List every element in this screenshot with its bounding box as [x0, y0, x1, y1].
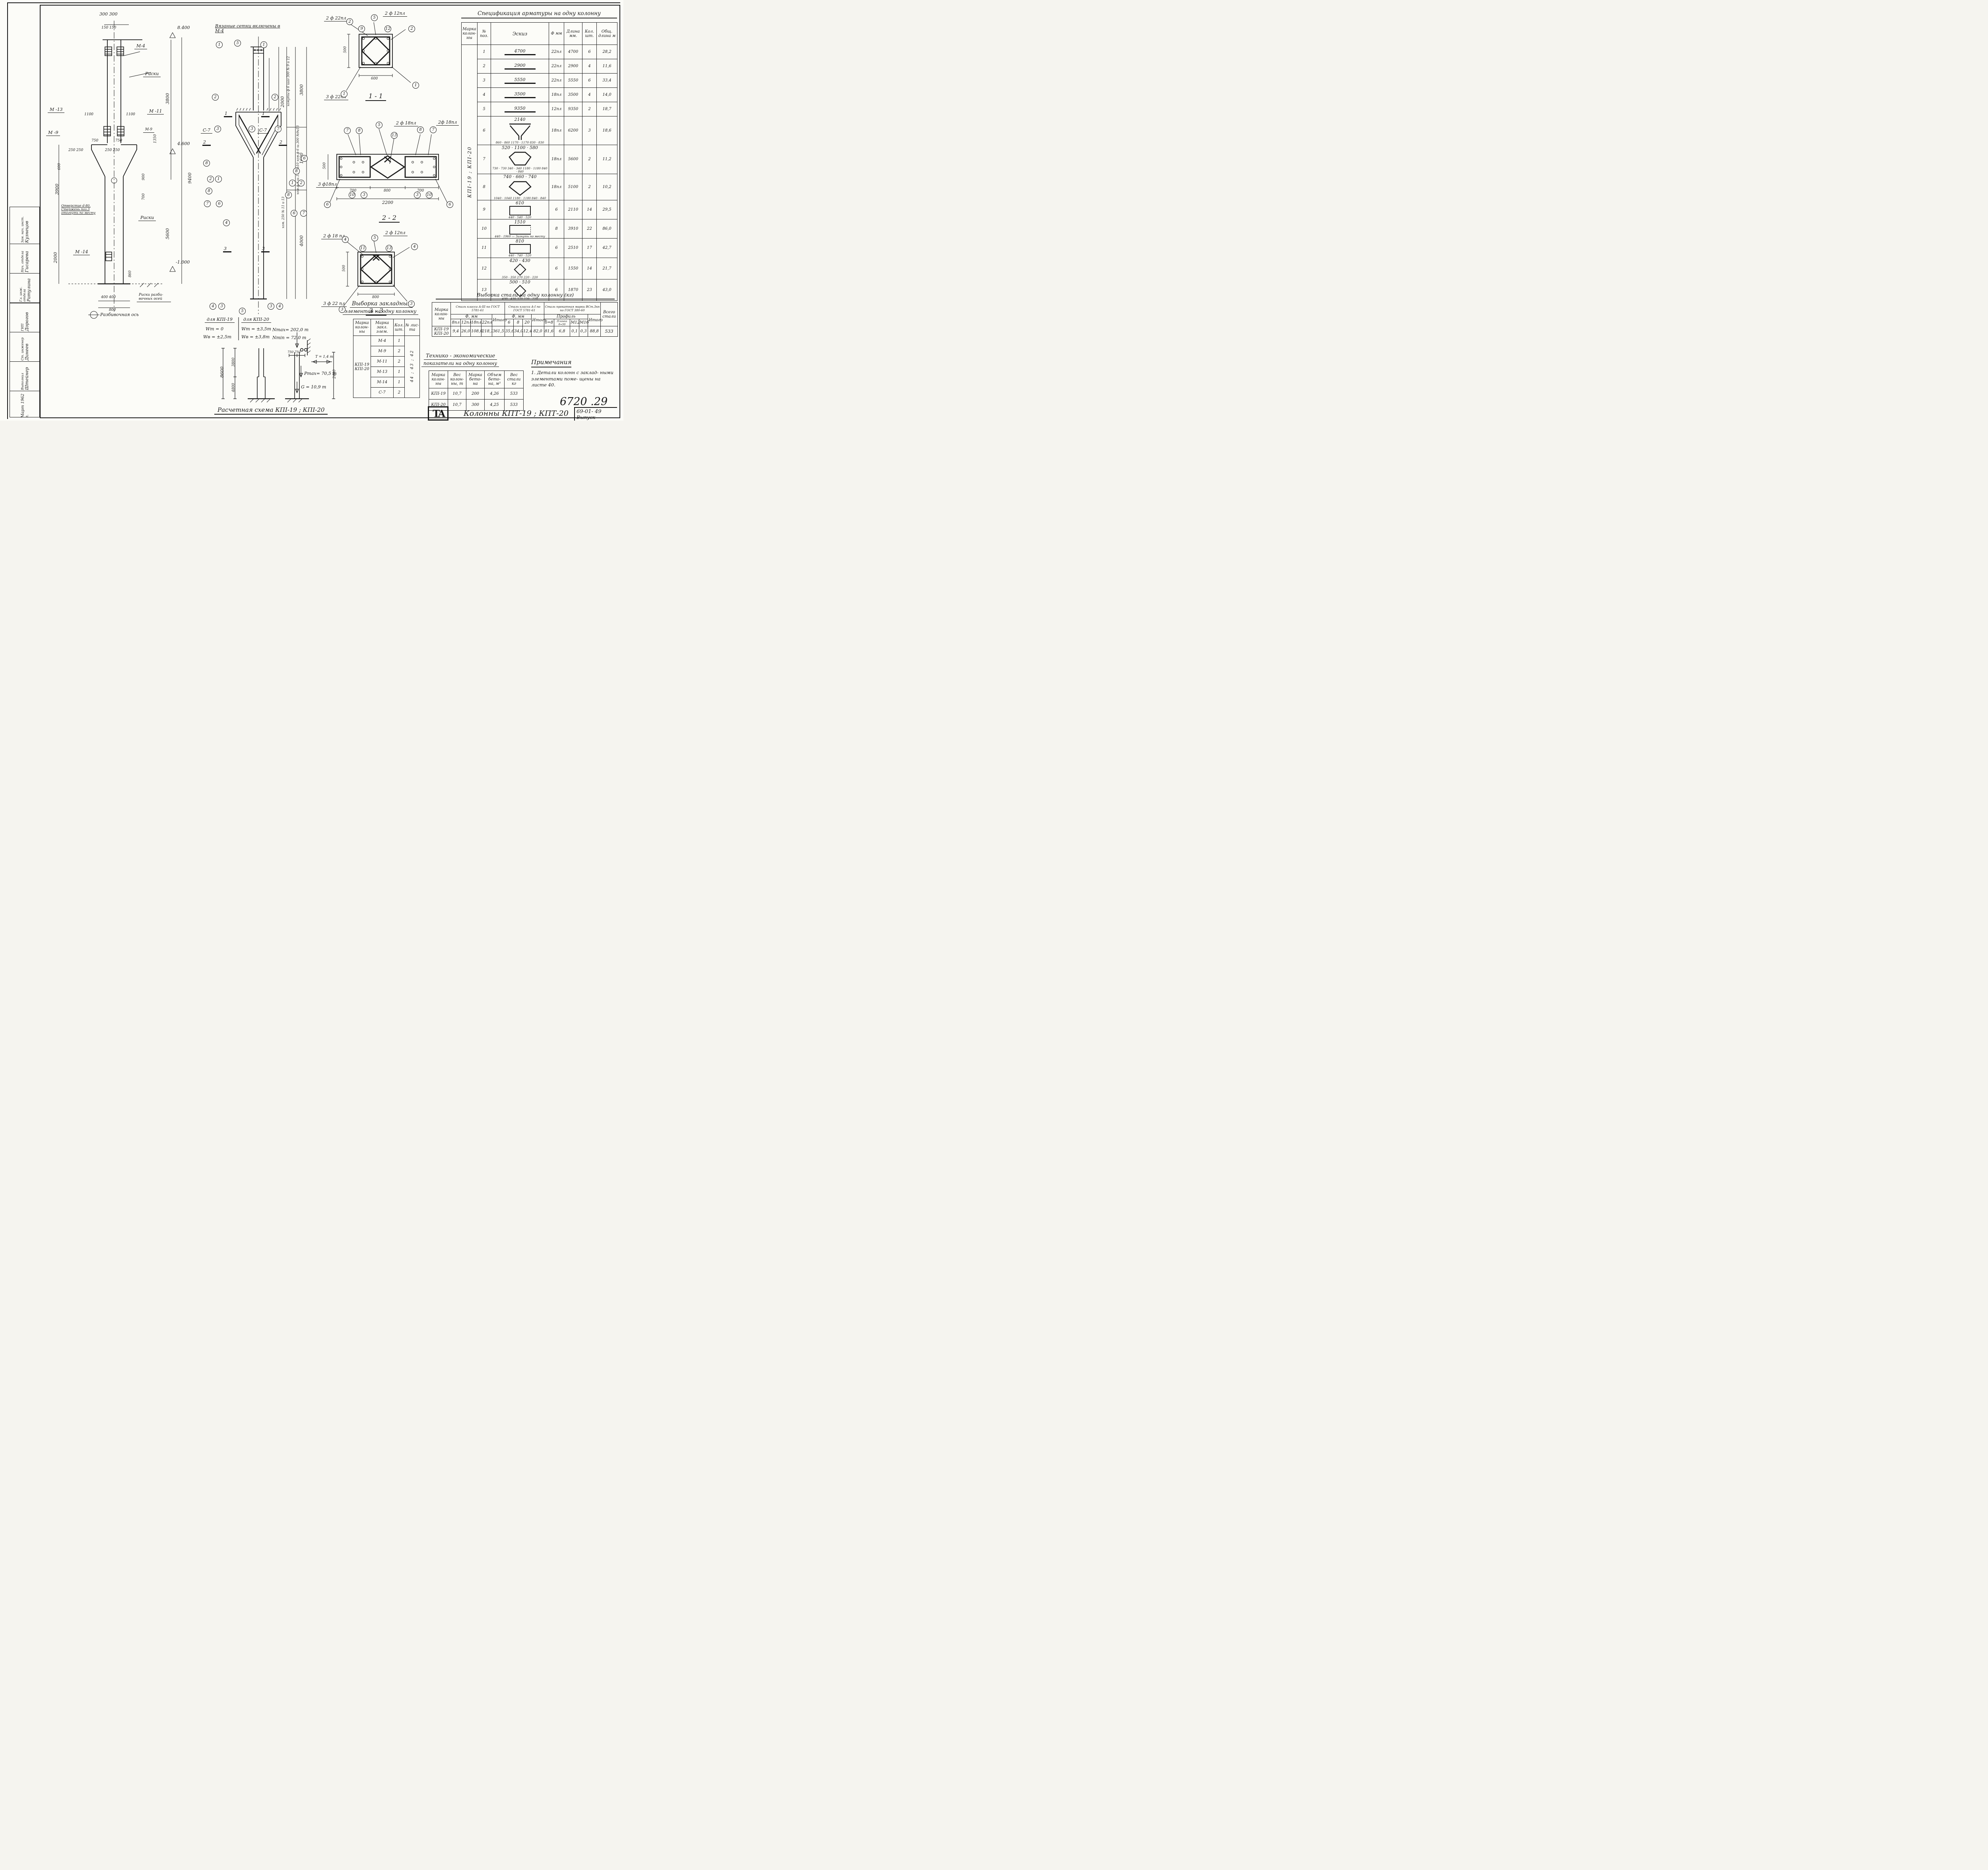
dim-400-400: 400 400: [101, 296, 116, 300]
embed-elem: М-11: [371, 357, 393, 367]
callout: 4: [210, 303, 216, 310]
logo-box: ТА: [428, 406, 448, 421]
callout: 1: [289, 180, 296, 186]
spec-esk: 810 440 · 740 · 520: [491, 239, 549, 258]
esk-shape-line: [505, 54, 536, 55]
callout: 3: [361, 192, 367, 198]
spec-pos: 11: [478, 239, 491, 258]
section-mark-1: 1: [224, 111, 232, 117]
tep-table: Марка колон- ны Вес колон- ны, т Марка б…: [429, 371, 524, 411]
spec-len: 3910: [564, 219, 582, 239]
calc-dim-4800: 4800: [232, 383, 236, 392]
spec-len: 5100: [564, 174, 582, 200]
callout: 6: [301, 155, 308, 162]
callout: 2: [272, 94, 278, 101]
tep-title-2: показатели на одну колонну: [421, 361, 499, 367]
spec-qty: 14: [582, 200, 597, 219]
callout: 7: [430, 126, 437, 133]
spec-qty: 2: [582, 145, 597, 174]
esk-dim: 610: [516, 200, 524, 206]
steel-g3-itogo-h: Итого: [588, 314, 601, 326]
mark-m4: М-4: [134, 44, 147, 49]
callout: 4: [276, 303, 283, 310]
spec-qty: 4: [582, 88, 597, 102]
callout: 7: [204, 200, 211, 207]
calc-head-1: для КПІ-19: [205, 317, 235, 323]
dim-800: 800: [384, 189, 390, 193]
steel-total: 533: [601, 326, 618, 337]
callout: 2: [212, 94, 219, 101]
dim-1100a: 1100: [84, 113, 93, 117]
mark-s7-right: С-7: [257, 128, 269, 134]
left-elevation-view: 300 300 150 150 М-4 Риски 8.400 3800 М -…: [45, 9, 204, 327]
spec-dia: 22пл: [549, 59, 564, 74]
dim-9400: 9400: [188, 173, 192, 184]
spec-h-esk: Эскиз: [491, 23, 549, 45]
steel-v: 35,6: [505, 326, 514, 337]
axis-label: Разбивочная ось: [100, 312, 139, 317]
spec-len: 2510: [564, 239, 582, 258]
spec-total: 86,0: [597, 219, 617, 239]
section-2-2: 7 8 5 13 2 ф 18пл 8 7 2ф 18пл 3 ф18пл 10…: [316, 119, 461, 229]
stamp-cell-4: ГИП Дорогов: [10, 303, 40, 332]
bar-2f12: 2 ф 12пл: [383, 231, 408, 236]
spec-dia: 22пл: [549, 74, 564, 88]
embed-qty: 1: [394, 367, 405, 377]
esk-dim: 810: [516, 239, 524, 244]
mark-m11: М -11: [147, 109, 164, 114]
esk-note: 1040 · 1040 1180 · 1180 840 · 840: [494, 197, 546, 200]
tep-mark: КПI-19: [429, 388, 448, 400]
stamp-date-cell: Март 1962 г.: [10, 391, 40, 417]
elev-minus-1000: -1.000: [176, 260, 190, 265]
tep-h-mark: Марка колон- ны: [429, 371, 448, 388]
stamp-cell-1: Зам. нач. инст. Кузнецов: [10, 207, 40, 244]
hole-note: Отверстие d-80. Стержень поз.3 отогнуть …: [61, 204, 99, 215]
steel-g1-c4: 22пл: [481, 319, 492, 326]
dim-150-150: 150 150: [101, 26, 116, 30]
spec-dia: 18пл: [549, 88, 564, 102]
steel-v: 12,4: [522, 326, 532, 337]
esk-dim: 9350: [514, 106, 526, 111]
dim-700: 700: [142, 193, 146, 200]
steel-v: 81,6: [544, 326, 554, 337]
spec-total: 29,5: [597, 200, 617, 219]
section-mark-2: 2: [202, 140, 211, 146]
callout: 8: [293, 168, 300, 175]
esk-dim: 2140: [514, 117, 526, 122]
steel-itogo: 88,8: [588, 326, 601, 337]
embed-qty: 2: [394, 346, 405, 357]
dim-600: 600: [58, 163, 62, 170]
callout: 11: [359, 245, 366, 252]
callout: 3: [248, 126, 255, 132]
project-code: 69-01- 49: [577, 409, 615, 415]
embed-table: Марка колон- ны Марка закл. элем. Кол. ш…: [353, 319, 420, 398]
esk-shape-rect-open: [509, 225, 531, 235]
spec-dia: 6: [549, 239, 564, 258]
esk-dim: 740 · 660 · 740: [503, 174, 537, 179]
steel-title: Выборка стали на одну колонну (кг): [436, 292, 615, 300]
spec-pos: 12: [478, 258, 491, 279]
calc-t: T = 1,4 т: [315, 355, 333, 359]
callout: 6: [447, 201, 453, 208]
calc-w2a: Wт = ±3,5т: [241, 327, 271, 332]
esk-note: 860 · 860 1170 · 1170 830 · 830: [496, 141, 544, 144]
calc-w1b: Wв = ±2,5т: [203, 335, 231, 339]
steel-g1-itogo-h: Итого: [492, 314, 505, 326]
spec-pos: 5: [478, 102, 491, 116]
mark-m9: М -9: [46, 130, 60, 136]
dim-500: 500: [323, 162, 327, 169]
steel-g1-c2: 12пл: [461, 319, 471, 326]
embed-qty: 2: [394, 357, 405, 367]
embed-mark: КПІ-19 КПІ-20: [353, 336, 371, 398]
spec-qty: 14: [582, 258, 597, 279]
dim-800: 800: [372, 296, 379, 300]
spec-qty: 3: [582, 116, 597, 145]
stamp-name: Динеев: [24, 333, 29, 361]
callout: 13: [391, 132, 398, 139]
spec-len: 3500: [564, 88, 582, 102]
spec-total: 11,2: [597, 145, 617, 174]
callout: 3: [339, 306, 346, 313]
stamp-role: Ст. инженер: [21, 333, 24, 361]
callout: 2: [298, 180, 305, 186]
steel-g3-c3: М12: [570, 319, 579, 326]
spec-h-len: Длина мм.: [564, 23, 582, 45]
calc-head-2: для КПІ-20: [241, 317, 271, 323]
embed-h-qty: Кол. шт.: [394, 319, 405, 336]
embed-sheets: 44 ; 43 ; 42: [405, 336, 420, 398]
section-2-2-drawing: [316, 119, 461, 229]
spec-qty: 6: [582, 45, 597, 59]
callout: 4: [223, 219, 230, 226]
drawing-sheet: Март 1962 г. Выполнил Штейнер Ст. инжене…: [0, 0, 623, 421]
section-mark-2: 2: [279, 140, 287, 146]
spec-title: Спецификация арматуры на одну колонну: [461, 10, 617, 19]
steel-g3-title: Сталь прокатная марки ВСт.3кп по ГОСТ 38…: [544, 303, 600, 314]
steel-g1-c3: 18пл: [470, 319, 481, 326]
steel-h-mark: Марка колон- ны: [432, 303, 451, 326]
tep-grade: 200: [466, 388, 485, 400]
section-mark-3: 3: [223, 246, 231, 252]
riski-label: Риски: [143, 72, 161, 77]
spec-pos: 8: [478, 174, 491, 200]
calc-w1a: Wт = 0: [206, 327, 223, 332]
callout: 5: [371, 14, 378, 21]
spec-dia: 18пл: [549, 116, 564, 145]
elev-4600: 4.600: [177, 142, 190, 146]
spec-qty: 2: [582, 174, 597, 200]
spec-qty: 2: [582, 102, 597, 116]
callout: 7: [300, 210, 307, 217]
spec-dia: 6: [549, 200, 564, 219]
dim-600: 600: [371, 77, 378, 81]
esk-shape-line: [505, 111, 536, 113]
spec-total: 18,7: [597, 102, 617, 116]
project-code2: Выпуск: [577, 415, 615, 420]
dim-3900: 3900: [55, 184, 60, 195]
dim-3800-mid: 3800: [299, 84, 304, 95]
spec-pos: 1: [478, 45, 491, 59]
spec-len: 1550: [564, 258, 582, 279]
embed-title-2: элементов на одну колонну: [343, 308, 418, 315]
embed-elem: М-14: [371, 377, 393, 388]
embed-qty: 2: [394, 388, 405, 398]
dim-4000-mid: 4000: [299, 235, 304, 246]
bar-2f12: 2 ф 12пл: [383, 11, 407, 17]
esk-dim: 4700: [514, 48, 526, 54]
left-title-block-rotated: Март 1962 г. Выполнил Штейнер Ст. инжене…: [10, 207, 40, 417]
dim-3800: 3800: [165, 93, 170, 104]
callout: 2: [408, 25, 415, 32]
callout: 9: [358, 25, 365, 32]
bar-2f18a: 2 ф 18пл: [394, 121, 418, 126]
spec-esk: 740 · 660 · 740 1040 · 1040 1180 · 1180 …: [491, 174, 549, 200]
steel-v: 218,1: [481, 326, 492, 337]
embed-elem: М-4: [371, 336, 393, 346]
callout: 4: [411, 243, 418, 250]
spec-pos: 9: [478, 200, 491, 219]
spec-total: 21,7: [597, 258, 617, 279]
calc-g: G = 10,9 т: [301, 385, 326, 390]
steel-g1-c1: 8пл: [451, 319, 461, 326]
spec-esk: 520 · 1100 · 580 730 · 730 340 · 340 118…: [491, 145, 549, 174]
spec-pos: 10: [478, 219, 491, 239]
stirrup-note-1: хомуты ф 6 шаг 300 № 9 и 12: [287, 56, 291, 106]
spec-esk: 2140 860 · 860 1170 · 1170 830 · 830: [491, 116, 549, 145]
spec-esk: 9350: [491, 102, 549, 116]
callout: 8: [417, 126, 424, 133]
callout: 12: [384, 25, 391, 32]
steel-g3-c1: δ=8: [544, 319, 554, 326]
embed-elem: С-7: [371, 388, 393, 398]
dim-500: 500: [343, 265, 347, 272]
spec-dia: 12пл: [549, 102, 564, 116]
esk-dim: 5550: [514, 77, 526, 82]
dim-300-300: 300 300: [99, 12, 118, 17]
steel-mark: КПI-19 КПI-20: [432, 326, 451, 337]
stamp-cell-5: Ст. инженер Динеев: [10, 332, 40, 361]
steel-g2-itogo-h: Итого: [532, 314, 544, 326]
calc-caption: Расчетная схема КПІ-19 ; КПІ-20: [214, 406, 328, 415]
spec-total: 18,6: [597, 116, 617, 145]
embed-sheet-numbers: 44 ; 43 ; 42: [410, 350, 414, 382]
section-caption: 1 - 1: [365, 92, 386, 101]
callout: 3: [408, 301, 415, 307]
callout: 1: [341, 91, 348, 97]
spec-esk: 4700: [491, 45, 549, 59]
callout: 10: [349, 192, 355, 198]
calc-nmin: Nmin = 72,0 т: [272, 336, 306, 340]
spec-pos: 2: [478, 59, 491, 74]
esk-note: 440 · 1960 — Загнуть по месту: [495, 235, 545, 238]
bar-2f22: 2 ф 22пл: [324, 16, 348, 21]
notes-title: Примечания: [531, 359, 571, 368]
corner-code-box: 69-01- 49 Выпуск: [574, 407, 617, 421]
steel-g3-c4: М16: [579, 319, 588, 326]
spec-mark-cell: КПІ-19 ; КПІ-20: [462, 45, 478, 301]
callout: 6: [291, 210, 297, 217]
dim-5600: 5600: [165, 228, 170, 239]
spec-esk: 2900: [491, 59, 549, 74]
esk-shape-line: [505, 68, 536, 70]
esk-shape-hex: [506, 151, 534, 167]
spec-total: 11,6: [597, 59, 617, 74]
mark-m9b: М-9: [143, 128, 154, 133]
steel-g2-sub: Ф, мм: [505, 314, 532, 319]
calc-dim-8600: 8600: [220, 367, 225, 378]
spec-mark: КПІ-19 ; КПІ-20: [467, 146, 472, 198]
esk-dim: 2900: [514, 63, 526, 68]
spec-len: 2900: [564, 59, 582, 74]
callout: 1: [216, 41, 223, 48]
callout: 1: [215, 176, 222, 182]
spec-total: 42,7: [597, 239, 617, 258]
embed-h-elem: Марка закл. элем.: [371, 319, 393, 336]
steel-g1-title: Сталь класса А-III по ГОСТ 5781-61: [451, 303, 505, 314]
spec-total: 33,4: [597, 74, 617, 88]
steel-g3-c2: Планка δ=50: [554, 319, 570, 326]
esk-shape-line: [505, 83, 536, 84]
stamp-cell-3: Гл. инж. отдела Ратулина: [10, 273, 40, 303]
steel-h-total: Всего стали: [601, 303, 618, 326]
spec-esk: 610 440 · 540 · 520: [491, 200, 549, 219]
callout: 8: [356, 127, 363, 134]
spec-esk: 5550: [491, 74, 549, 88]
calc-w2b: Wв = ±3,8т: [241, 335, 270, 339]
spec-len: 5550: [564, 74, 582, 88]
dim-1100b: 1100: [126, 113, 135, 117]
embed-title-1: Выборка закладных: [350, 301, 413, 308]
tep-weight: 10,7: [448, 388, 466, 400]
steel-g1-sub: Ф, мм: [451, 314, 492, 319]
mark-m14: М -14: [73, 250, 90, 255]
stamp-role: Выполнил: [21, 363, 24, 390]
tep-h-weight: Вес колон- ны, т: [448, 371, 466, 388]
esk-shape-pent: [506, 180, 534, 196]
spec-total: 10,2: [597, 174, 617, 200]
mid-top-note: Вязаные сетки включены в М-4: [215, 24, 283, 33]
tep-volume: 4,26: [485, 388, 505, 400]
spec-len: 6200: [564, 116, 582, 145]
esk-shape-rect: [509, 244, 531, 254]
spec-h-total: Общ. длина м: [597, 23, 617, 45]
spec-dia: 18пл: [549, 145, 564, 174]
callout: 13: [386, 245, 392, 252]
steel-table: Марка колон- ны Сталь класса А-III по ГО…: [432, 302, 618, 337]
stamp-name: Ратулина: [26, 274, 31, 302]
callout: 6: [216, 200, 223, 207]
calc-dim-3800: 3800: [232, 357, 236, 367]
stamp-role: Гл. инж. отдела: [19, 274, 26, 302]
spec-h-qty: Кол. шт.: [582, 23, 597, 45]
section-mark-3: 3: [261, 246, 270, 252]
paper-edge-left: [7, 2, 8, 419]
steel-g2-title: Сталь класса А-I по ГОСТ 5781-61: [505, 303, 544, 314]
stirrup-note-3: хом. 250 № 11 и 13: [282, 197, 285, 229]
spec-len: 4700: [564, 45, 582, 59]
esk-shape-rect: [509, 206, 531, 215]
spec-esk: 1510 440 · 1960 — Загнуть по месту: [491, 219, 549, 239]
spec-dia: 8: [549, 219, 564, 239]
dim-1350: 1350: [154, 134, 158, 143]
spec-h-mark: Марка колон- ны: [462, 23, 478, 45]
spec-dia: 6: [549, 258, 564, 279]
spec-total: 28,2: [597, 45, 617, 59]
callout: 1: [260, 41, 267, 48]
stamp-role: ГИП: [21, 304, 24, 331]
spec-dia: 22пл: [549, 45, 564, 59]
elev-8400: 8.400: [177, 25, 190, 30]
section-caption: 2 - 2: [379, 214, 400, 223]
tep-h-volume: Объем бето- на, м³: [485, 371, 505, 388]
callout: 3: [214, 126, 221, 132]
callout: 6: [324, 201, 331, 208]
spec-pos: 7: [478, 145, 491, 174]
steel-table-block: Выборка стали на одну колонну (кг) Марка…: [432, 292, 619, 352]
dim-900: 900: [142, 173, 146, 180]
callout: 5: [376, 122, 382, 128]
embed-h-mark: Марка колон- ны: [353, 319, 371, 336]
dim-250-250a: 250 250: [68, 149, 83, 153]
middle-elevation-drawing: [201, 36, 320, 338]
spec-esk: 3500: [491, 88, 549, 102]
spec-table-block: Спецификация арматуры на одну колонну Ма…: [461, 10, 619, 289]
callout: 3: [218, 303, 225, 310]
esk-dim: 1510: [514, 219, 526, 225]
stamp-name: Штейнер: [24, 363, 29, 390]
dim-750-750b: 750: [115, 139, 122, 143]
dim-500: 500: [344, 46, 348, 53]
callout: 5: [234, 40, 241, 47]
spec-pos: 6: [478, 116, 491, 145]
steel-itogo: 361,5: [492, 326, 505, 337]
notes-item-1: 1. Детали колонн с заклад- ными элемента…: [531, 370, 615, 388]
tep-title-1: Технико - экономические: [424, 353, 497, 360]
callout: 8: [203, 160, 210, 167]
stamp-date: Март 1962 г.: [21, 391, 29, 417]
steel-v: 108,0: [470, 326, 481, 337]
callout: 5: [371, 235, 378, 241]
section-1-1: 2 ф 22пл 2 5 2 ф 12пл 9 12 2 1 1 3 ф 22п…: [324, 11, 431, 111]
middle-elevation-view: Вязаные сетки включены в М-4: [201, 24, 320, 326]
esk-shape-line: [505, 97, 536, 98]
spec-h-dia: Ф мм: [549, 23, 564, 45]
stamp-name: Дорогов: [24, 304, 29, 331]
embed-h-sheet: № лис- та: [405, 319, 420, 336]
logo-ta: ТА: [433, 408, 443, 419]
esk-dim: 520 · 1100 · 580: [502, 145, 538, 150]
calc-pmax: Pmax= 70,5 т: [304, 371, 337, 376]
bottom-title: Колонны КПТ-19 ; КПТ-20: [464, 409, 569, 418]
axis-riski-note: Риски разби- вочных осей: [137, 293, 171, 302]
dim-2000-mid: 2000: [280, 96, 285, 107]
spec-pos: 4: [478, 88, 491, 102]
spec-len: 9350: [564, 102, 582, 116]
stamp-role: Нач. отдела: [21, 245, 24, 272]
embed-qty: 1: [394, 336, 405, 346]
esk-dim: 3500: [514, 91, 526, 97]
mark-m13: М -13: [48, 107, 64, 113]
stamp-role: Зам. нач. инст.: [21, 208, 24, 243]
callout: 4: [342, 236, 349, 243]
tep-steel: 533: [505, 388, 524, 400]
steel-g3-sub: Профиль: [544, 314, 588, 319]
spec-pos: 3: [478, 74, 491, 88]
embed-qty: 1: [394, 377, 405, 388]
